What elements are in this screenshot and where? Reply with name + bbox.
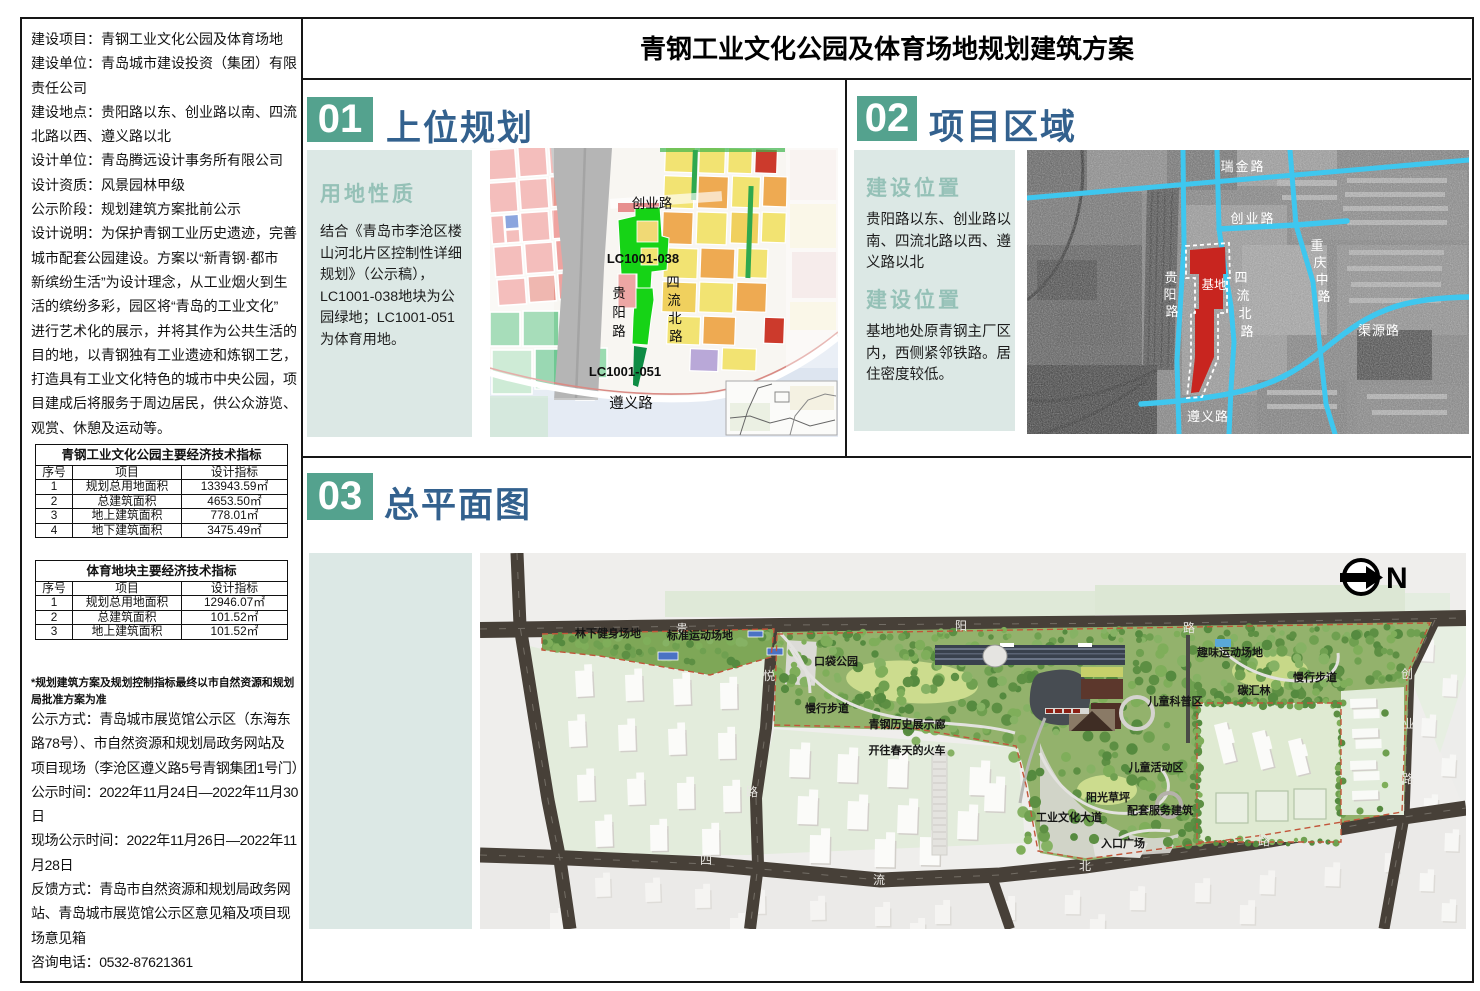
svg-text:贵: 贵 [612,286,626,301]
svg-text:流: 流 [873,873,885,887]
svg-text:重: 重 [1310,238,1323,253]
svg-text:路: 路 [1402,771,1414,786]
svg-text:青钢历史展示廊: 青钢历史展示廊 [869,717,946,731]
svg-text:阳: 阳 [612,305,626,320]
svg-text:入口广场: 入口广场 [1101,836,1145,850]
svg-text:LC1001-038: LC1001-038 [607,251,679,266]
svg-text:悦: 悦 [763,669,775,683]
svg-text:路: 路 [669,329,683,344]
svg-text:瑞金路: 瑞金路 [1220,159,1265,174]
svg-text:业: 业 [1403,717,1415,731]
svg-text:工业文化大道: 工业文化大道 [1036,810,1102,824]
svg-text:北: 北 [1079,859,1091,873]
svg-text:慢行步道: 慢行步道 [805,701,849,715]
svg-text:阳: 阳 [955,619,967,633]
svg-text:儿童活动区: 儿童活动区 [1128,760,1184,774]
svg-text:路: 路 [1240,324,1253,339]
svg-text:四: 四 [1234,270,1247,285]
svg-text:LC1001-051: LC1001-051 [589,364,661,379]
svg-text:路: 路 [612,324,626,339]
svg-text:流: 流 [667,293,681,308]
svg-text:碳汇林: 碳汇林 [1238,683,1271,697]
svg-text:基地: 基地 [1201,278,1227,292]
svg-text:路: 路 [1258,833,1270,848]
svg-text:路: 路 [1165,304,1178,319]
svg-text:口袋公园: 口袋公园 [814,654,858,668]
svg-text:北: 北 [1238,306,1251,321]
svg-text:遵义路: 遵义路 [609,395,653,412]
svg-text:标准运动场地: 标准运动场地 [666,628,733,642]
svg-text:北: 北 [668,311,682,326]
svg-text:创业路: 创业路 [1230,211,1275,226]
svg-text:趣味运动场地: 趣味运动场地 [1196,645,1263,659]
svg-text:儿童科普区: 儿童科普区 [1147,694,1203,708]
svg-text:庆: 庆 [1313,255,1326,270]
svg-text:四: 四 [700,853,712,867]
svg-text:慢行步道: 慢行步道 [1293,670,1337,684]
svg-text:流: 流 [1236,288,1249,303]
svg-text:开往春天的火车: 开往春天的火车 [869,743,946,757]
svg-text:林下健身场地: 林下健身场地 [575,626,641,640]
svg-text:贵: 贵 [1164,270,1177,285]
svg-text:创: 创 [1401,667,1413,681]
svg-text:路: 路 [746,784,758,799]
svg-text:N: N [1386,562,1408,595]
svg-text:创业路: 创业路 [632,196,673,211]
svg-text:路: 路 [1317,289,1330,304]
svg-text:配套服务建筑: 配套服务建筑 [1127,803,1193,817]
svg-text:渠源路: 渠源路 [1358,323,1400,338]
svg-text:路: 路 [1183,620,1195,635]
svg-text:阳光草坪: 阳光草坪 [1086,790,1130,804]
svg-text:遵义路: 遵义路 [1187,409,1229,424]
svg-text:阳: 阳 [1163,287,1176,302]
svg-text:中: 中 [1315,272,1328,287]
svg-text:四: 四 [666,275,680,290]
